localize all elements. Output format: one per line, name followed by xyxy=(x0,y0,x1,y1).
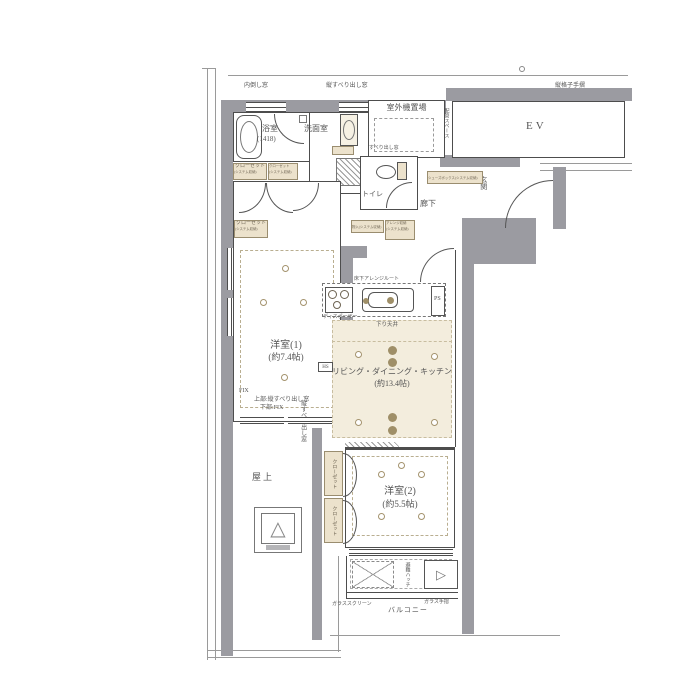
sink-bowl-icon xyxy=(343,120,355,140)
closet-box: クローゼット (システム収納) xyxy=(234,220,268,238)
downlight-icon xyxy=(378,471,385,478)
pipe-shaft-label: PS xyxy=(434,296,441,303)
balcony-rail xyxy=(346,592,458,599)
toilet-bowl-icon xyxy=(376,165,396,179)
arrange-storage-label: アレンジ収納 xyxy=(386,222,406,226)
glass-rail-note: ガラス手摺 xyxy=(424,600,449,606)
site-boundary-line xyxy=(207,68,208,660)
shoes-box-label: シューズボックス(システム収納) xyxy=(428,174,478,183)
downlight-icon xyxy=(431,419,438,426)
window-icon xyxy=(246,102,286,112)
west-wall xyxy=(221,100,233,656)
faucet-icon xyxy=(363,298,369,304)
arrange-storage-box: アレンジ収納 (システム収納) xyxy=(385,220,415,240)
toilet-tank-icon xyxy=(397,162,407,180)
entrance-door-arc xyxy=(505,180,553,228)
storage-box xyxy=(332,146,354,155)
corridor-rail-line xyxy=(540,163,632,164)
elevator-label: EV xyxy=(526,120,547,132)
downlight-icon xyxy=(355,419,362,426)
closet-sub-label: (システム収納) xyxy=(269,171,292,175)
downlight-icon xyxy=(355,351,362,358)
downlight-icon xyxy=(418,513,425,520)
downlight-icon xyxy=(282,265,289,272)
storage-label: 物入(システム収納) xyxy=(352,223,381,232)
window-note: 縦すべり出し窓 xyxy=(299,400,306,448)
arrange-storage-sub: (システム収納) xyxy=(386,228,409,232)
dropped-ceiling-note: 下り天井 xyxy=(376,322,398,328)
downlight-icon xyxy=(300,299,307,306)
closet-box: クローゼット (システム収納) xyxy=(233,163,267,180)
outdoor-unit-label: 室外機置場 xyxy=(368,104,445,113)
site-boundary-line xyxy=(215,68,216,660)
closet-box: クローゼット xyxy=(324,498,343,543)
window-note: FIX xyxy=(239,388,249,395)
shoes-box: シューズボックス(システム収納) xyxy=(427,171,483,184)
ldk-east-line xyxy=(455,250,456,447)
ev-north-wall xyxy=(446,88,632,101)
closet-sub-label: (システム収納) xyxy=(234,171,257,175)
downlight-icon xyxy=(378,513,385,520)
closet-label: クローゼット xyxy=(331,499,337,542)
underfloor-note: 床下アレンジルート xyxy=(354,277,399,283)
piping-note: 配管スペース xyxy=(443,108,449,142)
window-icon xyxy=(349,549,453,556)
upper-boundary-line xyxy=(228,75,628,76)
washroom-label: 洗面室 xyxy=(304,125,328,134)
western2-size-label: (約5.5帖) xyxy=(345,500,455,510)
closet-box: クローゼット xyxy=(324,451,343,496)
ldk-size-label: (約13.4帖) xyxy=(332,380,452,389)
closet-label: クローゼット xyxy=(235,164,265,169)
glass-screen-note: ガラススクリーン xyxy=(332,602,372,608)
bathroom-label: 浴室 xyxy=(262,125,278,134)
room-border-dashed xyxy=(240,250,334,408)
boundary-cap-line xyxy=(202,68,216,69)
bathtub-icon xyxy=(240,121,258,153)
closet-label: クローゼット xyxy=(236,221,266,226)
hallway-label: 廊下 xyxy=(420,200,436,209)
rooftop-edge-line xyxy=(207,657,341,658)
window-note: 下部:FIX xyxy=(260,405,283,412)
storage-box: 物入(システム収納) xyxy=(351,220,384,233)
escape-hatch-label: 避難ハッチ xyxy=(404,562,410,590)
window-icon xyxy=(240,417,284,424)
downlight-icon xyxy=(281,374,288,381)
handrail-note: 縦格子手摺 xyxy=(555,83,585,90)
hs-box: HS xyxy=(318,362,333,372)
ldk-label: リビング・ダイニング・キッチン xyxy=(332,368,452,377)
toilet-label: トイレ xyxy=(362,191,383,199)
closet-label: クローゼット xyxy=(269,165,289,169)
entrance-side-wall xyxy=(553,167,566,229)
closet-label: クローゼット xyxy=(331,452,337,495)
speaker-icon xyxy=(388,413,397,422)
window-note: 内倒し窓 xyxy=(244,83,268,90)
escape-hatch-icon: ▷ xyxy=(424,560,458,589)
west-wall-lower xyxy=(312,428,322,640)
window-icon xyxy=(288,417,334,424)
survey-point-icon xyxy=(519,66,525,72)
center-wall-top xyxy=(341,246,367,258)
ldk-door-arc xyxy=(420,248,454,282)
western1-label: 洋室(1) xyxy=(233,340,339,351)
speaker-icon xyxy=(388,426,397,435)
rooftop-label: 屋上 xyxy=(252,473,274,483)
faucet-icon xyxy=(387,297,394,304)
downlight-icon xyxy=(418,471,425,478)
western2-label: 洋室(2) xyxy=(345,486,455,497)
dropped-ceiling-line xyxy=(332,341,452,342)
skylight-base xyxy=(266,545,290,550)
window-note: 縦すべり出し窓 xyxy=(364,146,399,152)
floor-plan: 内倒し窓 縦すべり出し窓 縦格子手摺 EV 室外機置場 縦すべり出し窓 配管スペ… xyxy=(0,0,692,686)
bathroom-size-label: (1418) xyxy=(257,136,276,144)
window-note: 縦すべり出し窓 xyxy=(326,83,368,90)
downlight-icon xyxy=(431,353,438,360)
burner-icon xyxy=(328,290,337,299)
downlight-icon xyxy=(260,299,267,306)
outdoor-unit-space-icon xyxy=(352,561,394,588)
speaker-icon xyxy=(388,358,397,367)
east-wall xyxy=(462,264,474,634)
skylight-icon: △ xyxy=(261,513,295,544)
closet-box: クローゼット (システム収納) xyxy=(268,163,298,180)
downlight-icon xyxy=(398,462,405,469)
closet-sub-label: (システム収納) xyxy=(235,228,258,232)
burner-icon xyxy=(340,290,349,299)
lower-boundary-line xyxy=(330,635,560,636)
burner-icon xyxy=(333,301,341,309)
balcony-label: バルコニー xyxy=(388,607,428,615)
speaker-icon xyxy=(388,346,397,355)
